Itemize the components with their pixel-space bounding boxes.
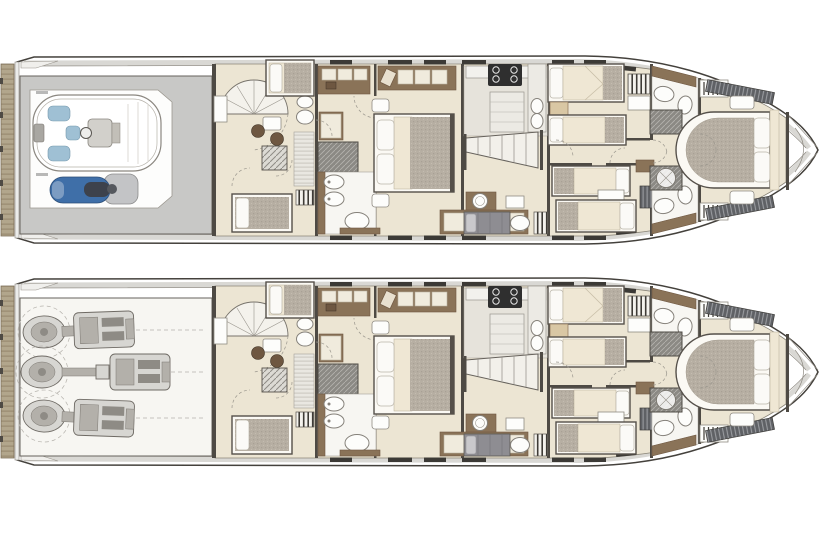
accommodation-layout-top	[212, 60, 818, 240]
tender-garage-section	[20, 76, 212, 234]
yacht-deck-plans-image	[0, 0, 827, 551]
deck-plan-top	[0, 56, 818, 244]
deck-plans-svg	[0, 0, 827, 551]
accommodation-layout-bottom	[212, 282, 818, 462]
engine-room-section	[16, 298, 212, 456]
deck-plan-bottom	[0, 278, 818, 466]
